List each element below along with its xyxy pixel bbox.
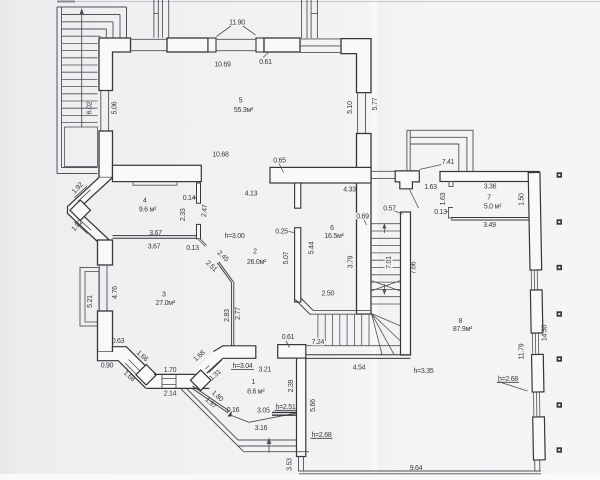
svg-text:5.44: 5.44	[309, 241, 316, 254]
svg-text:3.36: 3.36	[484, 184, 497, 191]
svg-text:9.6 м²: 9.6 м²	[139, 206, 157, 213]
svg-text:0.13: 0.13	[434, 209, 447, 216]
svg-text:26.0м²: 26.0м²	[247, 259, 267, 266]
svg-text:0.57: 0.57	[383, 206, 396, 213]
svg-text:1.63: 1.63	[440, 192, 447, 205]
svg-text:6: 6	[330, 225, 334, 232]
svg-text:2.77: 2.77	[235, 307, 242, 320]
svg-text:5.07: 5.07	[283, 251, 290, 264]
svg-text:3.67: 3.67	[149, 230, 162, 237]
svg-text:2: 2	[253, 249, 257, 256]
svg-text:h=3.00: h=3.00	[224, 233, 244, 240]
svg-text:7.24: 7.24	[311, 339, 324, 346]
svg-text:2.39: 2.39	[288, 379, 295, 392]
svg-text:16.5м²: 16.5м²	[324, 233, 344, 240]
svg-text:0.90: 0.90	[101, 363, 114, 370]
svg-text:4: 4	[143, 198, 147, 205]
svg-text:0.69: 0.69	[356, 214, 369, 221]
svg-text:8.6 м²: 8.6 м²	[247, 388, 265, 395]
svg-text:2.33: 2.33	[180, 208, 187, 221]
svg-text:6.02: 6.02	[87, 101, 94, 114]
svg-text:11.79: 11.79	[519, 343, 526, 359]
svg-text:10.69: 10.69	[214, 62, 231, 69]
svg-text:h=2.68: h=2.68	[498, 376, 518, 383]
svg-text:1.50: 1.50	[519, 193, 526, 206]
svg-text:3.21: 3.21	[258, 367, 271, 374]
svg-text:0.14: 0.14	[183, 195, 196, 202]
svg-text:3.16: 3.16	[255, 425, 268, 432]
svg-text:3.49: 3.49	[483, 222, 496, 229]
svg-text:5.66: 5.66	[310, 399, 317, 412]
svg-text:7.66: 7.66	[411, 261, 418, 274]
svg-text:3.79: 3.79	[348, 255, 355, 268]
svg-text:4.13: 4.13	[245, 191, 258, 198]
svg-text:7: 7	[487, 195, 491, 202]
svg-text:7.41: 7.41	[442, 159, 455, 166]
svg-text:5.77: 5.77	[372, 97, 379, 110]
svg-text:4.76: 4.76	[112, 286, 119, 299]
svg-text:1.63: 1.63	[424, 184, 437, 191]
svg-text:h=3.35: h=3.35	[413, 368, 433, 375]
svg-text:3: 3	[162, 291, 166, 298]
svg-text:1: 1	[251, 379, 255, 386]
svg-text:5.21: 5.21	[87, 295, 94, 308]
svg-text:2.47: 2.47	[201, 204, 209, 218]
svg-text:5.06: 5.06	[112, 101, 119, 114]
svg-text:9.64: 9.64	[410, 465, 423, 472]
svg-text:1.70: 1.70	[164, 367, 177, 374]
svg-text:0.13: 0.13	[186, 245, 199, 252]
svg-text:2.14: 2.14	[164, 391, 177, 398]
svg-text:10.68: 10.68	[212, 152, 229, 159]
svg-text:0.65: 0.65	[273, 158, 286, 165]
svg-text:14.30: 14.30	[542, 325, 549, 342]
svg-text:87.9м²: 87.9м²	[453, 326, 473, 333]
svg-text:55.3м²: 55.3м²	[234, 107, 254, 114]
svg-text:0.61: 0.61	[259, 59, 272, 66]
svg-text:0.61: 0.61	[282, 334, 295, 341]
svg-text:8: 8	[459, 318, 463, 325]
svg-text:h=2.68: h=2.68	[311, 432, 331, 439]
svg-text:5: 5	[239, 98, 243, 105]
svg-text:h=2.51: h=2.51	[275, 404, 295, 411]
svg-text:0.25: 0.25	[275, 229, 288, 236]
svg-text:0.63: 0.63	[112, 338, 125, 345]
svg-text:3.53: 3.53	[287, 458, 294, 471]
svg-text:4.33: 4.33	[343, 187, 356, 194]
svg-text:4.54: 4.54	[353, 365, 366, 372]
svg-text:3.67: 3.67	[148, 244, 161, 251]
svg-text:0.16: 0.16	[227, 407, 240, 414]
svg-text:h=3.04: h=3.04	[232, 363, 252, 370]
svg-text:5.0 м²: 5.0 м²	[484, 204, 502, 211]
svg-text:2.50: 2.50	[321, 291, 334, 298]
svg-text:5.10: 5.10	[347, 101, 354, 114]
svg-text:11.90: 11.90	[229, 20, 245, 27]
svg-text:2.83: 2.83	[224, 309, 231, 322]
svg-text:27.0м²: 27.0м²	[156, 300, 176, 307]
svg-text:7.01: 7.01	[386, 256, 393, 269]
svg-text:3.05: 3.05	[257, 407, 270, 414]
